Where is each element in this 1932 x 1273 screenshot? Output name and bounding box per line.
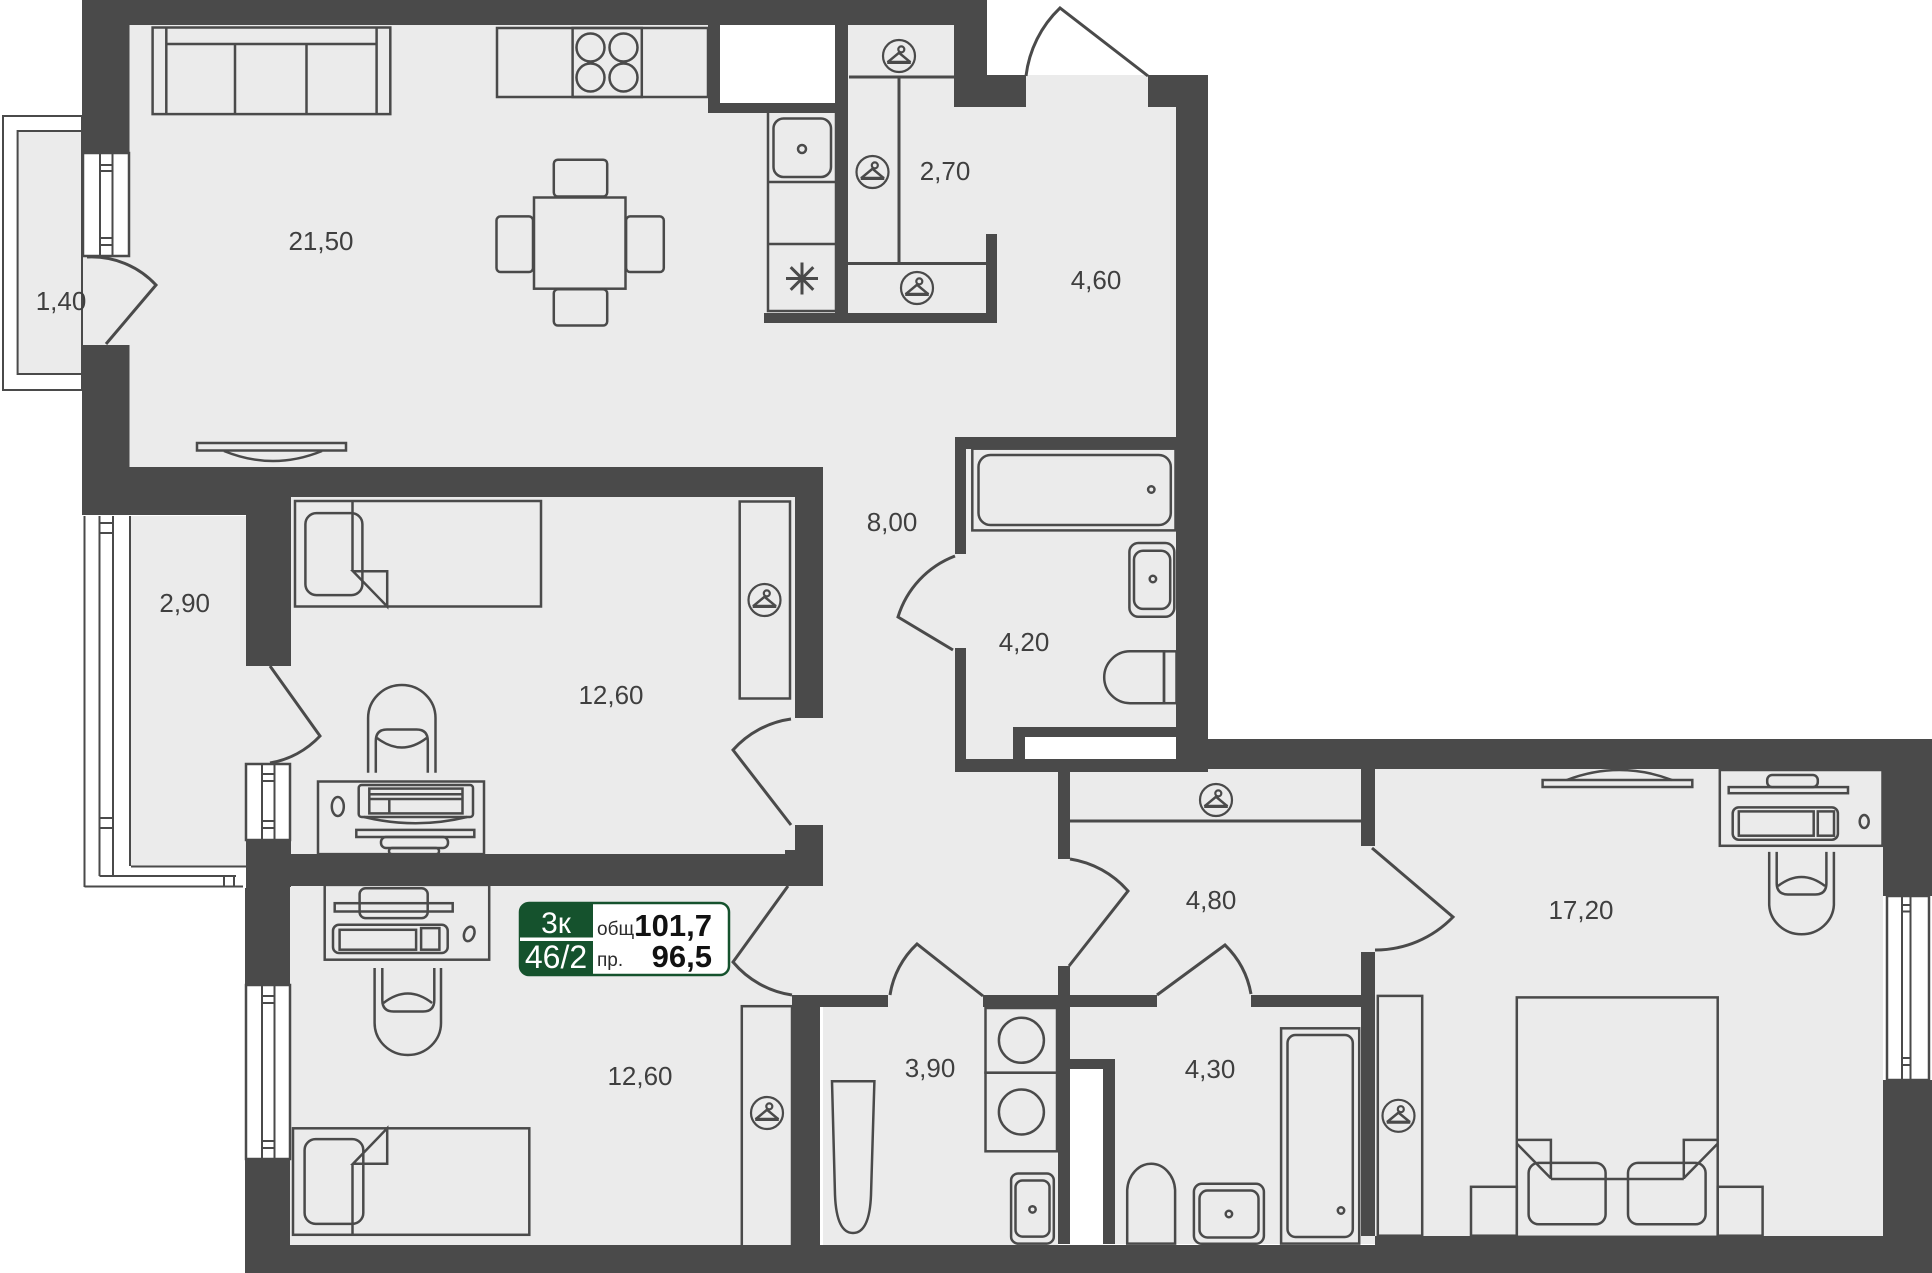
svg-text:12,60: 12,60 xyxy=(578,680,643,710)
svg-text:46/2: 46/2 xyxy=(525,939,587,975)
svg-text:4,60: 4,60 xyxy=(1071,265,1122,295)
svg-text:4,30: 4,30 xyxy=(1185,1054,1236,1084)
svg-text:пр.: пр. xyxy=(597,950,623,971)
svg-text:4,20: 4,20 xyxy=(999,627,1050,657)
svg-text:2,90: 2,90 xyxy=(159,588,210,618)
svg-text:2,70: 2,70 xyxy=(920,156,971,186)
svg-text:4,80: 4,80 xyxy=(1186,885,1237,915)
svg-text:101,7: 101,7 xyxy=(634,908,712,943)
svg-text:96,5: 96,5 xyxy=(652,939,712,974)
svg-text:общ.: общ. xyxy=(597,919,639,940)
svg-text:12,60: 12,60 xyxy=(607,1061,672,1091)
svg-text:3к: 3к xyxy=(541,907,572,940)
svg-text:8,00: 8,00 xyxy=(867,507,918,537)
svg-text:3,90: 3,90 xyxy=(905,1053,956,1083)
svg-text:21,50: 21,50 xyxy=(288,226,353,256)
svg-text:1,40: 1,40 xyxy=(36,286,87,316)
svg-text:17,20: 17,20 xyxy=(1548,895,1613,925)
